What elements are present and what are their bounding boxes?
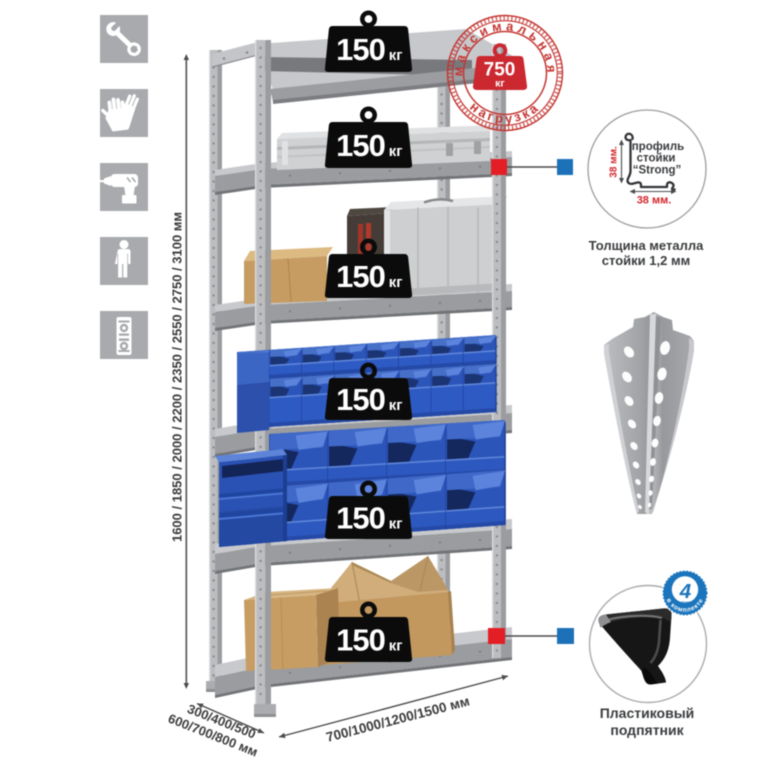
svg-text:кг: кг	[389, 516, 403, 533]
svg-text:кг: кг	[389, 47, 403, 64]
svg-text:4: 4	[679, 580, 692, 603]
svg-text:38 мм.: 38 мм.	[609, 146, 620, 178]
svg-text:150: 150	[336, 32, 385, 67]
svg-text:1600 / 1850 / 2000 / 2200 / 23: 1600 / 1850 / 2000 / 2200 / 2350 / 2550 …	[170, 212, 185, 542]
svg-text:штуки: штуки	[678, 601, 693, 606]
svg-text:Пластиковый: Пластиковый	[600, 705, 695, 721]
svg-text:кг: кг	[389, 143, 403, 160]
svg-text:профиль: профиль	[632, 141, 685, 153]
svg-text:150: 150	[336, 501, 385, 536]
svg-text:кг: кг	[389, 397, 403, 414]
svg-text:подпятник: подпятник	[610, 722, 684, 738]
svg-text:150: 150	[336, 259, 385, 294]
svg-text:кг: кг	[389, 638, 403, 655]
svg-text:“Strong”: “Strong”	[633, 165, 682, 177]
svg-text:150: 150	[336, 128, 385, 163]
svg-text:150: 150	[336, 623, 385, 658]
svg-text:150: 150	[336, 382, 385, 417]
svg-text:кг: кг	[495, 78, 505, 90]
svg-text:Толщина металла: Толщина металла	[589, 238, 704, 253]
svg-text:кг: кг	[389, 274, 403, 291]
svg-text:стойки 1,2 мм: стойки 1,2 мм	[602, 253, 690, 268]
svg-text:38 мм.: 38 мм.	[637, 195, 672, 207]
svg-text:стойки: стойки	[637, 153, 676, 165]
